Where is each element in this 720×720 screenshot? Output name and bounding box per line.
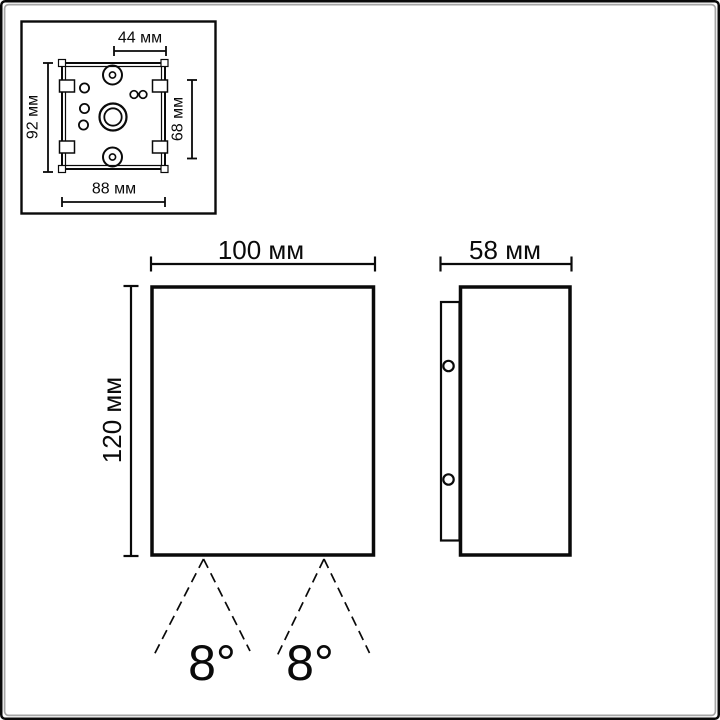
bracket-screw-hole [443, 361, 453, 371]
mounting-plate-inset: 44 мм 92 мм 68 мм 88 мм [22, 22, 216, 214]
mount-notch [153, 80, 168, 92]
beam-angle-left-label: 8° [188, 635, 236, 691]
dim-44mm-label: 44 мм [118, 30, 162, 47]
drawing-canvas: 44 мм 92 мм 68 мм 88 мм 100 мм [0, 0, 720, 720]
dim-120mm-label: 120 мм [97, 377, 127, 463]
mount-notch [153, 141, 168, 153]
beam-cones [154, 559, 370, 655]
wall-bracket-outline [441, 302, 460, 541]
bracket-screw-hole [443, 474, 453, 484]
side-view-outline [461, 287, 571, 555]
dim-88mm-label: 88 мм [92, 181, 136, 198]
corner-step [59, 60, 66, 67]
dim-58mm: 58 мм [441, 235, 572, 272]
dim-100mm: 100 мм [151, 235, 375, 272]
front-view-outline [152, 287, 374, 555]
dim-100mm-label: 100 мм [218, 235, 304, 265]
dim-58mm-label: 58 мм [469, 235, 541, 265]
dim-120mm: 120 мм [97, 286, 139, 556]
dimension-drawing: 44 мм 92 мм 68 мм 88 мм 100 мм [0, 0, 720, 720]
front-view: 100 мм 120 мм [97, 235, 375, 556]
mount-notch [60, 80, 75, 92]
side-view: 58 мм [441, 235, 572, 555]
dim-68mm-label: 68 мм [170, 97, 187, 141]
dim-92mm-label: 92 мм [25, 95, 42, 139]
mount-notch [60, 141, 75, 153]
corner-step [161, 60, 168, 67]
corner-step [161, 166, 168, 173]
beam-angle-right-label: 8° [286, 635, 334, 691]
corner-step [59, 166, 66, 173]
